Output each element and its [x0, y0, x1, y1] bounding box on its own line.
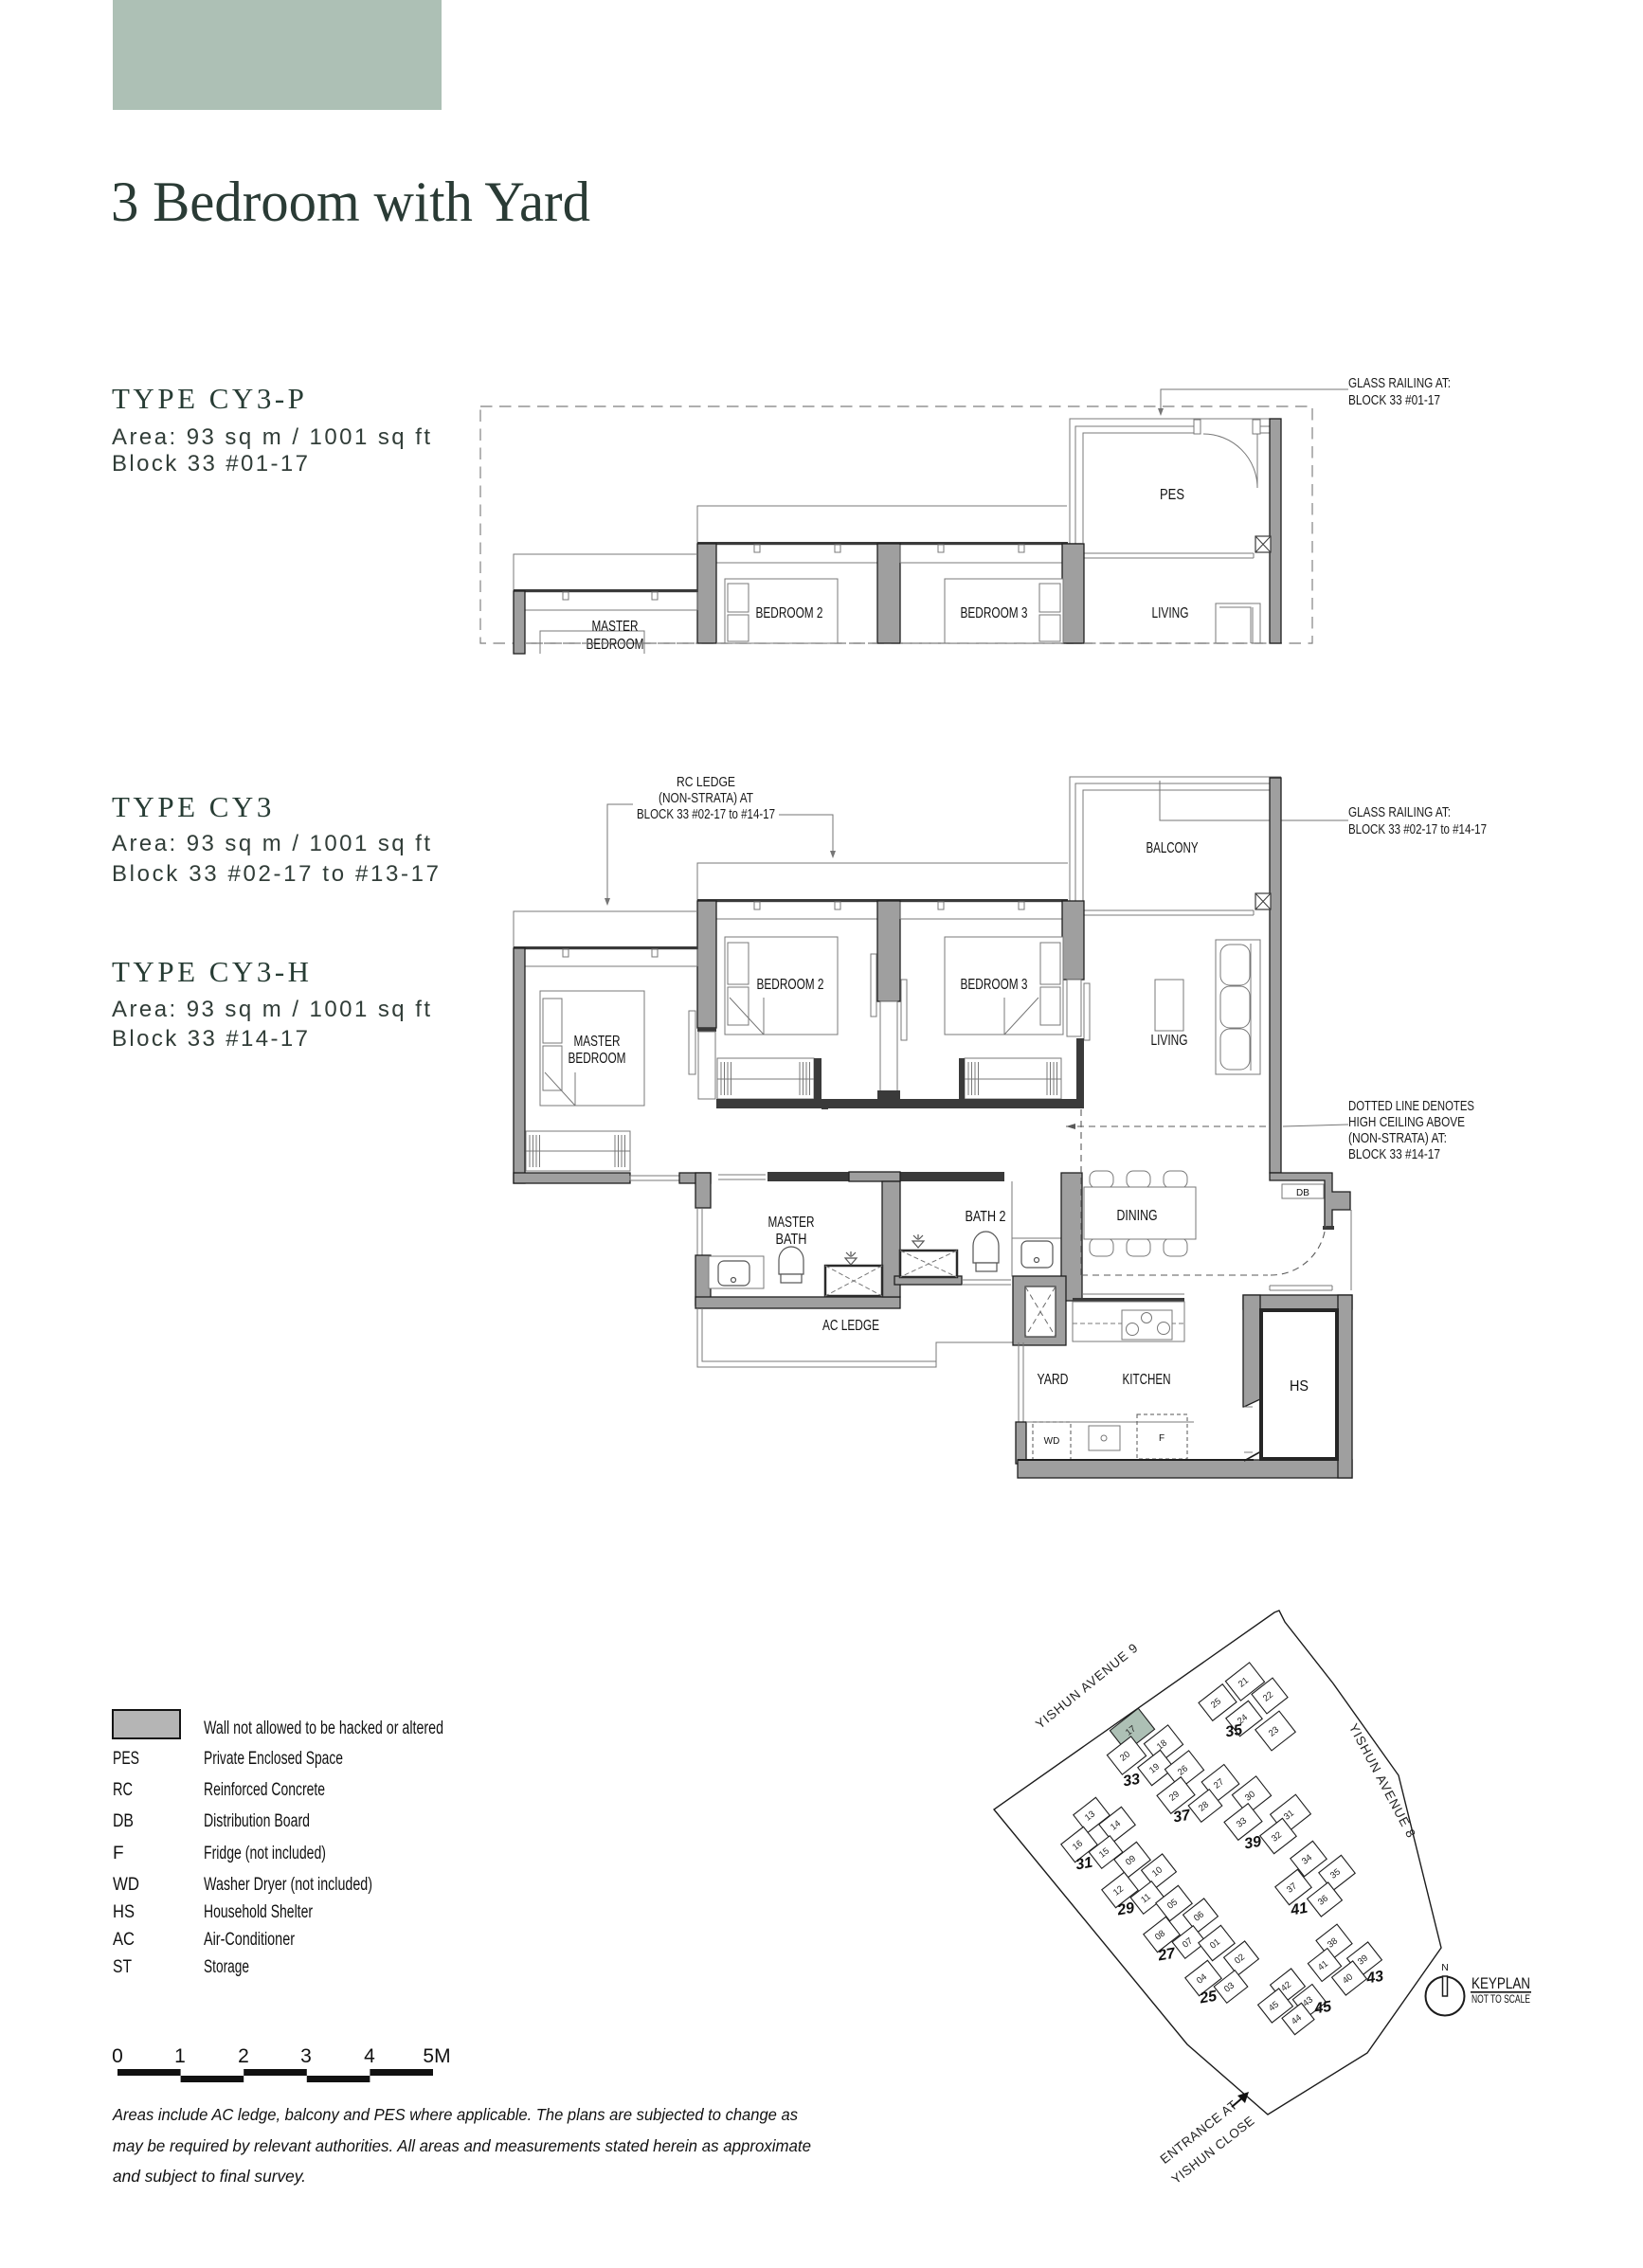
svg-text:KEYPLAN: KEYPLAN [1471, 1974, 1530, 1992]
svg-text:WD: WD [1044, 1436, 1060, 1447]
svg-text:BEDROOM: BEDROOM [587, 637, 644, 653]
svg-text:KITCHEN: KITCHEN [1123, 1372, 1171, 1388]
svg-text:BEDROOM 2: BEDROOM 2 [757, 977, 824, 993]
svg-text:WD: WD [113, 1875, 139, 1895]
svg-text:HS: HS [113, 1902, 135, 1922]
svg-text:Storage: Storage [204, 1957, 249, 1977]
svg-text:PES: PES [1160, 487, 1184, 503]
svg-text:HS: HS [1290, 1378, 1309, 1395]
svg-text:BLOCK 33 #02-17 to #14-17: BLOCK 33 #02-17 to #14-17 [1348, 822, 1487, 837]
svg-text:Washer Dryer (not included): Washer Dryer (not included) [204, 1875, 372, 1895]
svg-text:may be required by relevant au: may be required by relevant authorities.… [113, 2136, 811, 2155]
svg-text:Area: 93 sq m / 1001 sq ft: Area: 93 sq m / 1001 sq ft [112, 424, 430, 450]
svg-text:AC: AC [113, 1930, 135, 1950]
svg-text:0: 0 [112, 2045, 123, 2067]
svg-text:Household Shelter: Household Shelter [204, 1902, 313, 1922]
svg-text:N: N [1441, 1962, 1449, 1973]
svg-text:BLOCK 33 #02-17 to #14-17: BLOCK 33 #02-17 to #14-17 [637, 807, 775, 822]
svg-text:Areas include AC ledge, balcon: Areas include AC ledge, balcony and PES … [112, 2105, 798, 2124]
svg-text:and subject to final survey.: and subject to final survey. [113, 2167, 306, 2186]
svg-text:F: F [113, 1844, 124, 1863]
svg-text:1: 1 [174, 2045, 186, 2067]
svg-text:31: 31 [1074, 1855, 1094, 1874]
svg-text:39: 39 [1243, 1834, 1263, 1853]
svg-text:BEDROOM: BEDROOM [569, 1051, 626, 1067]
svg-text:Wall not allowed to be hacked: Wall not allowed to be hacked or altered [204, 1719, 443, 1738]
svg-text:GLASS RAILING AT:: GLASS RAILING AT: [1348, 376, 1451, 391]
svg-text:DB: DB [113, 1811, 134, 1831]
svg-text:(NON-STRATA) AT:: (NON-STRATA) AT: [1348, 1131, 1447, 1146]
svg-text:MASTER: MASTER [592, 619, 639, 635]
svg-text:GLASS RAILING AT:: GLASS RAILING AT: [1348, 805, 1451, 820]
svg-text:DOTTED LINE DENOTES: DOTTED LINE DENOTES [1348, 1099, 1474, 1114]
svg-text:MASTER: MASTER [768, 1215, 815, 1231]
svg-text:4: 4 [364, 2045, 375, 2067]
svg-text:ST: ST [113, 1957, 132, 1977]
svg-text:33: 33 [1122, 1772, 1142, 1791]
svg-text:RC: RC [113, 1780, 133, 1800]
svg-text:PES: PES [113, 1749, 139, 1769]
svg-text:DINING: DINING [1117, 1208, 1158, 1224]
svg-text:43: 43 [1364, 1969, 1385, 1988]
svg-text:AC LEDGE: AC LEDGE [822, 1318, 879, 1334]
svg-text:Fridge (not included): Fridge (not included) [204, 1844, 326, 1863]
svg-text:3: 3 [300, 2045, 312, 2067]
svg-text:BLOCK 33 #01-17: BLOCK 33 #01-17 [1348, 393, 1440, 408]
svg-text:29: 29 [1115, 1900, 1136, 1919]
svg-text:Air-Conditioner: Air-Conditioner [204, 1930, 295, 1950]
svg-text:BEDROOM 3: BEDROOM 3 [961, 605, 1028, 621]
svg-text:TYPE CY3: TYPE CY3 [112, 790, 275, 823]
svg-text:HIGH CEILING ABOVE: HIGH CEILING ABOVE [1348, 1115, 1465, 1130]
svg-text:BEDROOM 3: BEDROOM 3 [961, 977, 1028, 993]
svg-text:LIVING: LIVING [1152, 605, 1189, 621]
svg-text:NOT TO SCALE: NOT TO SCALE [1471, 1994, 1530, 2006]
svg-text:2: 2 [238, 2045, 249, 2067]
svg-text:5M: 5M [423, 2045, 450, 2067]
svg-text:Area: 93 sq m / 1001 sq ft: Area: 93 sq m / 1001 sq ft [112, 997, 430, 1022]
svg-text:TYPE CY3-P: TYPE CY3-P [112, 382, 307, 415]
svg-text:3 Bedroom with Yard: 3 Bedroom with Yard [111, 171, 590, 233]
svg-text:DB: DB [1296, 1188, 1309, 1198]
svg-text:BALCONY: BALCONY [1146, 840, 1199, 856]
svg-text:MASTER: MASTER [574, 1034, 621, 1050]
svg-text:YARD: YARD [1038, 1372, 1069, 1388]
svg-text:RC LEDGE: RC LEDGE [677, 775, 735, 790]
svg-text:TYPE CY3-H: TYPE CY3-H [112, 955, 313, 988]
svg-text:(NON-STRATA) AT: (NON-STRATA) AT [659, 791, 753, 806]
svg-text:Area: 93 sq m / 1001 sq ft: Area: 93 sq m / 1001 sq ft [112, 831, 430, 856]
svg-text:BATH 2: BATH 2 [966, 1209, 1006, 1225]
svg-text:BLOCK 33 #14-17: BLOCK 33 #14-17 [1348, 1147, 1440, 1162]
svg-text:Private Enclosed Space: Private Enclosed Space [204, 1749, 343, 1769]
svg-text:BATH: BATH [776, 1232, 807, 1248]
svg-text:Reinforced Concrete: Reinforced Concrete [204, 1780, 325, 1800]
svg-text:41: 41 [1289, 1900, 1309, 1919]
svg-text:Distribution Board: Distribution Board [204, 1811, 310, 1831]
svg-text:F: F [1159, 1433, 1165, 1444]
svg-text:Block 33 #02-17 to #13-17: Block 33 #02-17 to #13-17 [112, 861, 439, 887]
svg-text:LIVING: LIVING [1151, 1033, 1188, 1049]
svg-text:BEDROOM 2: BEDROOM 2 [756, 605, 823, 621]
